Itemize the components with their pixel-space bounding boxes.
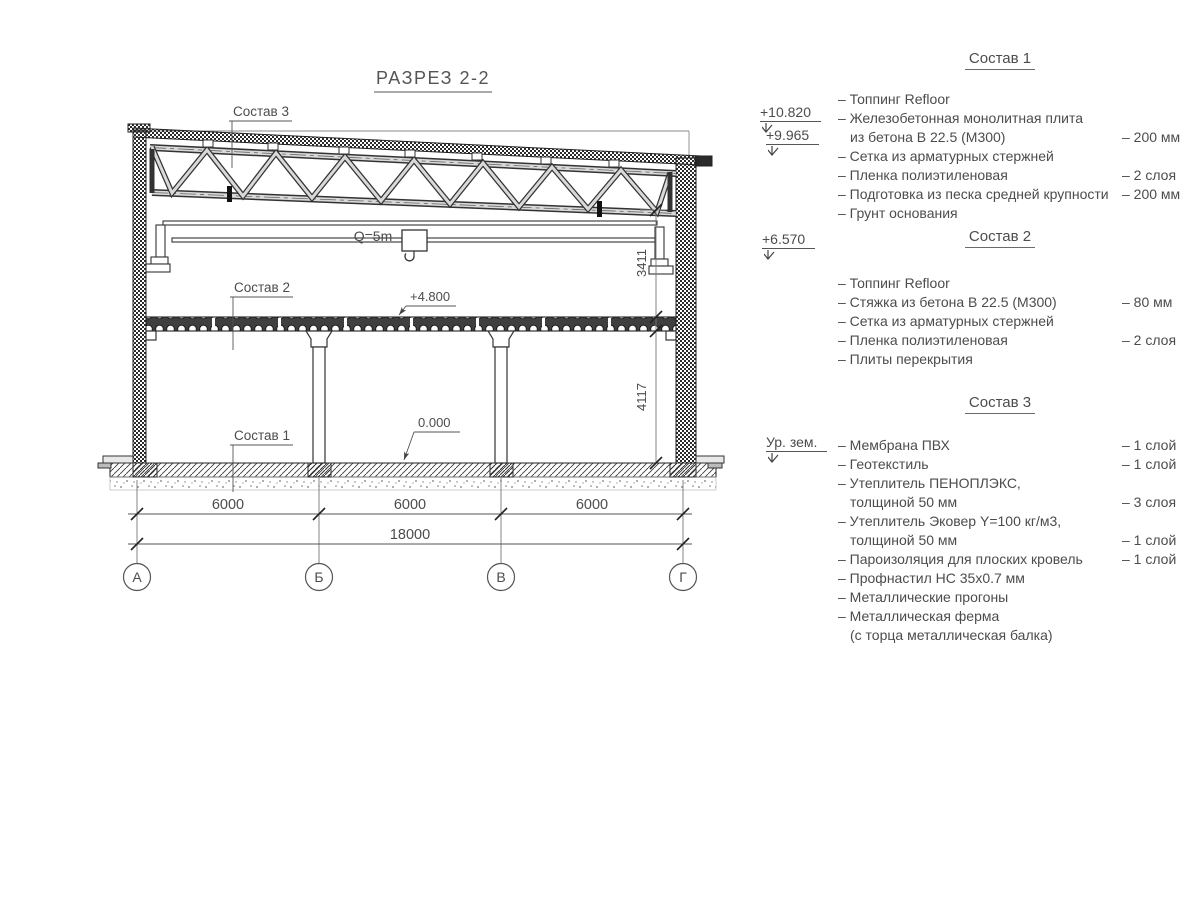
svg-text:0.000: 0.000 [418,415,451,430]
dim-span-3: 6000 [576,497,608,513]
material-row: – Мембрана ПВХ– 1 слой [838,436,1196,455]
svg-text:Состав 2: Состав 2 [234,280,290,295]
material-row: – Пленка полиэтиленовая– 2 слоя [838,331,1196,350]
drawing-title: РАЗРЕЗ 2-2 [374,68,492,92]
floor-slab [146,317,676,331]
material-row: – Утеплитель Эковер Y=100 кг/м3, [838,512,1196,531]
dim-total: 18000 [390,527,430,543]
axis-bubble-g: Г [679,569,687,585]
left-wall [128,124,150,463]
blueprint-page: Q=5m [0,0,1200,900]
material-row: (с торца металлическая балка) [838,626,1196,645]
material-row: – Плиты перекрытия [838,350,1196,369]
material-row: – Металлическая ферма [838,607,1196,626]
svg-text:Состав 3: Состав 3 [233,104,289,119]
dim-3411: 3411 [634,249,649,277]
bottom-dimensions: 6000 6000 6000 18000 [128,478,692,563]
material-row: – Утеплитель ПЕНОПЛЭКС, [838,474,1196,493]
material-row: – Металлические прогоны [838,588,1196,607]
composition-2-heading: Состав 2 [820,228,1180,248]
material-row: из бетона В 22.5 (М300)– 200 мм [838,128,1196,147]
elevation-value: +9.965 [766,127,819,145]
elevation-mark-ground-level: Ур. зем. [766,434,827,464]
material-row: – Геотекстиль– 1 слой [838,455,1196,474]
elevation-value: Ур. зем. [766,434,827,452]
elevation-value: +6.570 [762,231,815,249]
dim-span-1: 6000 [212,497,244,513]
axis-bubble-b: Б [314,569,323,585]
material-row: – Пароизоляция для плоских кровель– 1 сл… [838,550,1196,569]
overhead-crane [146,221,673,274]
material-row: – Стяжка из бетона В 22.5 (М300)– 80 мм [838,293,1196,312]
composition-1-heading: Состав 1 [820,50,1180,70]
dim-span-2: 6000 [394,497,426,513]
material-row: – Грунт основания [838,204,1196,223]
elevation-mark-6570: +6.570 [762,231,815,261]
ground-slab [98,456,724,490]
material-row: – Топпинг Refloor [838,274,1196,293]
elevation-value: +10.820 [760,104,821,122]
material-row: толщиной 50 мм– 3 слоя [838,493,1196,512]
dim-4117: 4117 [634,383,649,411]
composition-3-list: – Мембрана ПВХ– 1 слой – Геотекстиль– 1 … [838,436,1196,645]
svg-text:+4.800: +4.800 [410,289,450,304]
material-row: толщиной 50 мм– 1 слой [838,531,1196,550]
level-mark-0000: 0.000 [404,415,460,460]
material-row: – Сетка из арматурных стержней [838,147,1196,166]
right-wall [676,158,696,463]
composition-1-list: – Топпинг Refloor – Железобетонная монол… [838,90,1196,223]
composition-3-heading: Состав 3 [820,394,1180,414]
level-mark-4800: +4.800 [399,289,456,315]
svg-text:Состав 1: Состав 1 [234,428,290,443]
elevation-arrow-icon [768,453,782,464]
interior-columns [146,331,676,463]
axis-bubble-v: В [496,569,505,585]
elevation-mark-9965: +9.965 [766,127,819,157]
elevation-arrow-icon [768,146,782,157]
axis-bubbles: А Б В Г [124,564,697,591]
material-row: – Пленка полиэтиленовая– 2 слоя [838,166,1196,185]
callout-sostav2: Состав 2 [230,280,293,350]
svg-text:РАЗРЕЗ 2-2: РАЗРЕЗ 2-2 [376,68,490,88]
material-row: – Железобетонная монолитная плита [838,109,1196,128]
material-row: – Сетка из арматурных стержней [838,312,1196,331]
axis-bubble-a: А [132,569,142,585]
material-row: – Топпинг Refloor [838,90,1196,109]
crane-capacity-label: Q=5m [354,228,393,244]
composition-2-list: – Топпинг Refloor – Стяжка из бетона В 2… [838,274,1196,369]
elevation-arrow-icon [764,250,778,261]
material-row: – Подготовка из песка средней крупности–… [838,185,1196,204]
material-row: – Профнастил НС 35х0.7 мм [838,569,1196,588]
